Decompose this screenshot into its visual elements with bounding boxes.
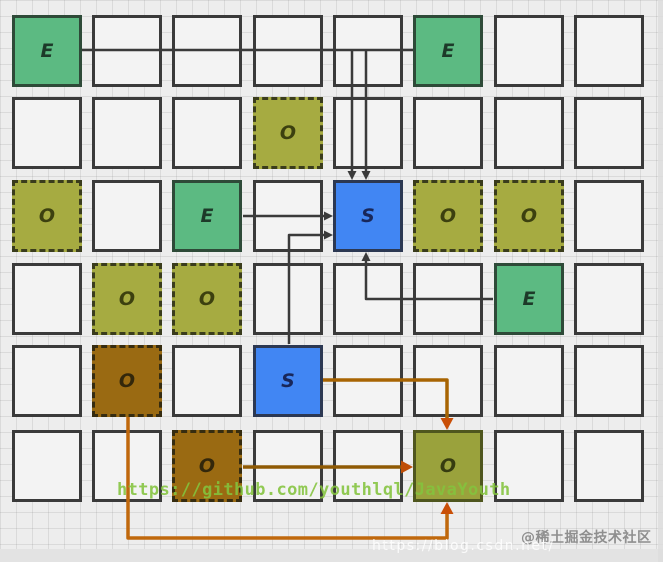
cell-o-r4c2: O bbox=[92, 263, 162, 335]
cell-empty-r1c7 bbox=[494, 15, 564, 87]
cell-empty-r5c8 bbox=[574, 345, 644, 417]
cell-label: E bbox=[442, 42, 455, 61]
cell-empty-r5c7 bbox=[494, 345, 564, 417]
cell-o-r3c1: O bbox=[12, 180, 82, 252]
cell-empty-r2c5 bbox=[333, 97, 403, 169]
bus-drop-into-s-right-arrowhead-icon bbox=[362, 171, 371, 180]
cell-label: O bbox=[39, 207, 55, 226]
diagram-canvas: EEOOESOOOOEOSOO https://blog.csdn.net/ h… bbox=[0, 0, 663, 562]
cell-label: O bbox=[199, 290, 215, 309]
cell-empty-r4c1 bbox=[12, 263, 82, 335]
e-mid-to-s-arrowhead-icon bbox=[324, 212, 333, 221]
right-margin-strip bbox=[658, 0, 663, 562]
cell-e-r1c1: E bbox=[12, 15, 82, 87]
watermark-github-url: https://github.com/youthlql/JavaYouth bbox=[117, 480, 511, 500]
cell-empty-r5c6 bbox=[413, 345, 483, 417]
cell-label: E bbox=[523, 290, 536, 309]
cell-empty-r3c2 bbox=[92, 180, 162, 252]
cell-empty-r2c1 bbox=[12, 97, 82, 169]
cell-label: O bbox=[199, 457, 215, 476]
cell-empty-r4c6 bbox=[413, 263, 483, 335]
cell-label: S bbox=[281, 372, 295, 391]
cell-empty-r1c8 bbox=[574, 15, 644, 87]
cell-empty-r3c4 bbox=[253, 180, 323, 252]
cell-empty-r4c8 bbox=[574, 263, 644, 335]
cell-empty-r2c6 bbox=[413, 97, 483, 169]
cell-empty-r6c1 bbox=[12, 430, 82, 502]
cell-empty-r2c3 bbox=[172, 97, 242, 169]
cell-label: O bbox=[280, 124, 296, 143]
cell-o-r4c3: O bbox=[172, 263, 242, 335]
e-right-to-s-bottom-arrowhead-icon bbox=[362, 252, 371, 261]
cell-o-r3c7: O bbox=[494, 180, 564, 252]
cell-s-r3c5: S bbox=[333, 180, 403, 252]
cell-o-r2c4: O bbox=[253, 97, 323, 169]
cell-e-r4c7: E bbox=[494, 263, 564, 335]
cell-empty-r1c2 bbox=[92, 15, 162, 87]
cell-label: O bbox=[119, 290, 135, 309]
cell-label: O bbox=[119, 372, 135, 391]
cell-o-r3c6: O bbox=[413, 180, 483, 252]
cell-e-r3c3: E bbox=[172, 180, 242, 252]
s-lower-to-o-final-top-arrowhead-icon bbox=[441, 418, 454, 430]
cell-empty-r4c4 bbox=[253, 263, 323, 335]
cell-empty-r6c8 bbox=[574, 430, 644, 502]
cell-o-r5c2: O bbox=[92, 345, 162, 417]
cell-empty-r5c5 bbox=[333, 345, 403, 417]
cell-e-r1c6: E bbox=[413, 15, 483, 87]
cell-empty-r1c3 bbox=[172, 15, 242, 87]
cell-empty-r2c2 bbox=[92, 97, 162, 169]
cell-empty-r2c7 bbox=[494, 97, 564, 169]
cell-label: E bbox=[201, 207, 214, 226]
watermark-csdn-url: https://blog.csdn.net/ bbox=[372, 538, 663, 554]
cell-label: S bbox=[361, 207, 375, 226]
bus-drop-into-s-left-arrowhead-icon bbox=[348, 171, 357, 180]
cell-empty-r5c3 bbox=[172, 345, 242, 417]
cell-s-r5c4: S bbox=[253, 345, 323, 417]
cell-label: E bbox=[41, 42, 54, 61]
cell-empty-r5c1 bbox=[12, 345, 82, 417]
s-lower-to-s-upper-arrowhead-icon bbox=[324, 231, 333, 240]
cell-empty-r1c4 bbox=[253, 15, 323, 87]
o-brown1-to-o-final-bottom-arrowhead-icon bbox=[441, 502, 454, 514]
cell-label: O bbox=[440, 207, 456, 226]
cell-label: O bbox=[521, 207, 537, 226]
cell-label: O bbox=[440, 457, 456, 476]
cell-empty-r1c5 bbox=[333, 15, 403, 87]
cell-empty-r2c8 bbox=[574, 97, 644, 169]
cell-empty-r4c5 bbox=[333, 263, 403, 335]
cell-empty-r3c8 bbox=[574, 180, 644, 252]
